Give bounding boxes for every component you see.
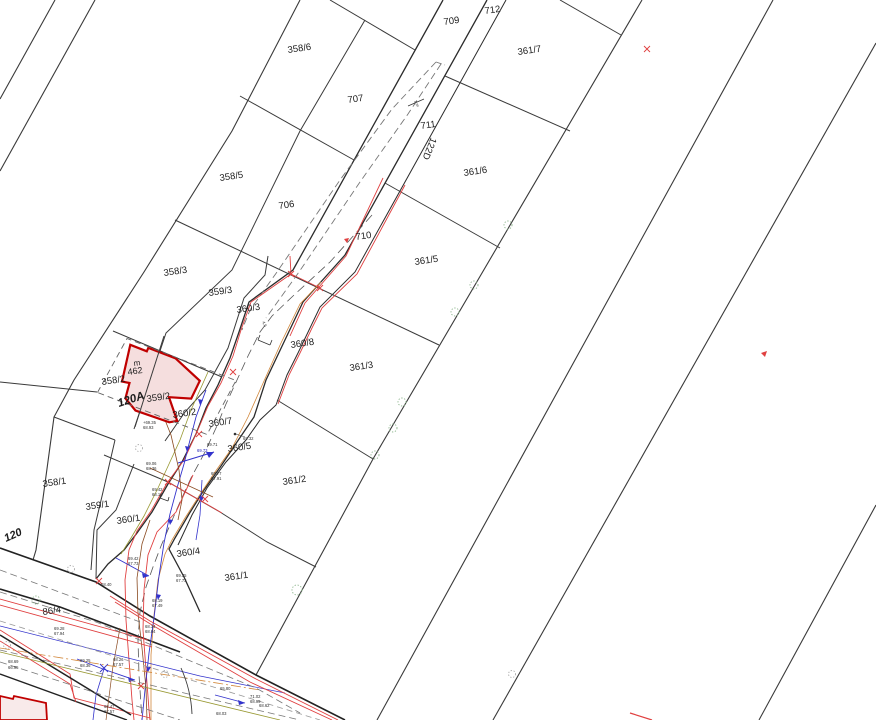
svg-text:67.57: 67.57 bbox=[104, 709, 115, 714]
svg-text:462: 462 bbox=[127, 365, 143, 377]
svg-text:712: 712 bbox=[484, 4, 501, 17]
svg-text:65.80: 65.80 bbox=[220, 686, 231, 691]
svg-text:67.94: 67.94 bbox=[54, 631, 65, 636]
svg-text:67.91: 67.91 bbox=[211, 476, 222, 481]
svg-text:706: 706 bbox=[278, 199, 295, 212]
svg-text:67.57: 67.57 bbox=[113, 662, 124, 667]
svg-text:68.36: 68.36 bbox=[146, 466, 157, 471]
svg-text:68.40: 68.40 bbox=[101, 582, 112, 587]
svg-text:69.73: 69.73 bbox=[197, 448, 208, 453]
svg-text:68.69: 68.69 bbox=[8, 659, 19, 664]
svg-text:67.73: 67.73 bbox=[128, 561, 139, 566]
svg-text:68.93: 68.93 bbox=[143, 425, 154, 430]
svg-text:709: 709 bbox=[443, 15, 460, 28]
svg-text:707: 707 bbox=[347, 93, 364, 106]
svg-text:67.49: 67.49 bbox=[152, 603, 163, 608]
svg-text:68.12: 68.12 bbox=[152, 492, 163, 497]
svg-text:69.71: 69.71 bbox=[207, 442, 218, 447]
svg-text:710: 710 bbox=[355, 230, 372, 243]
svg-text:66.95: 66.95 bbox=[8, 665, 19, 670]
svg-text:68.03: 68.03 bbox=[216, 711, 227, 716]
svg-text:68.62: 68.62 bbox=[259, 703, 270, 708]
svg-text:711: 711 bbox=[420, 119, 437, 132]
svg-text:68.36: 68.36 bbox=[80, 663, 91, 668]
svg-text:68.04: 68.04 bbox=[145, 629, 156, 634]
svg-text:67.73: 67.73 bbox=[176, 578, 187, 583]
